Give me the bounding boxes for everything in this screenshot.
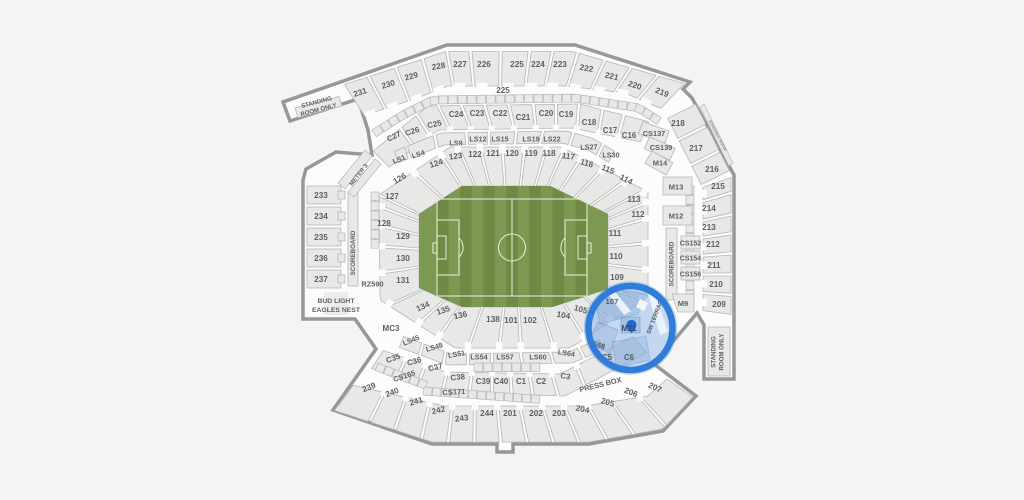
svg-text:ROOM ONLY: ROOM ONLY [719, 333, 726, 370]
svg-text:M14: M14 [653, 159, 668, 168]
svg-text:235: 235 [314, 233, 328, 242]
svg-text:107: 107 [606, 297, 619, 306]
svg-text:225: 225 [510, 60, 524, 69]
svg-text:C6: C6 [624, 353, 635, 362]
svg-text:C24: C24 [449, 110, 464, 119]
svg-text:210: 210 [709, 280, 723, 289]
svg-text:LS27: LS27 [580, 142, 597, 152]
svg-text:SCOREBOARD: SCOREBOARD [669, 241, 676, 286]
svg-text:C1: C1 [516, 377, 527, 386]
svg-text:LS15: LS15 [491, 135, 508, 144]
svg-text:129: 129 [396, 232, 410, 241]
svg-text:LS9: LS9 [449, 139, 462, 148]
svg-text:CS154: CS154 [680, 256, 702, 263]
svg-text:217: 217 [689, 144, 703, 153]
svg-text:226: 226 [477, 60, 491, 69]
svg-text:C17: C17 [603, 126, 618, 135]
svg-text:131: 131 [396, 276, 410, 285]
svg-text:122: 122 [468, 150, 482, 159]
svg-text:212: 212 [706, 240, 720, 249]
svg-text:111: 111 [609, 229, 622, 238]
svg-text:203: 203 [552, 409, 566, 418]
svg-text:C40: C40 [494, 377, 509, 386]
svg-text:112: 112 [631, 210, 645, 219]
svg-text:223: 223 [553, 60, 567, 69]
svg-text:C39: C39 [476, 377, 491, 386]
svg-text:236: 236 [314, 254, 328, 263]
svg-text:LS57: LS57 [496, 353, 513, 362]
svg-text:C2: C2 [536, 377, 547, 386]
svg-text:CS139: CS139 [650, 143, 673, 152]
svg-text:EAGLES NEST: EAGLES NEST [312, 307, 361, 314]
svg-text:121: 121 [486, 149, 500, 158]
svg-text:LS19: LS19 [522, 135, 539, 144]
svg-text:M13: M13 [669, 183, 684, 192]
svg-text:128: 128 [377, 219, 391, 228]
svg-text:101: 101 [504, 316, 518, 325]
svg-text:127: 127 [385, 192, 399, 201]
svg-text:C22: C22 [493, 109, 508, 118]
svg-text:224: 224 [531, 60, 545, 69]
svg-text:118: 118 [542, 149, 556, 158]
svg-text:117: 117 [561, 151, 576, 162]
svg-text:227: 227 [453, 60, 467, 69]
svg-text:LS22: LS22 [543, 135, 560, 144]
svg-text:M21: M21 [621, 324, 637, 333]
svg-text:109: 109 [610, 273, 624, 282]
svg-text:LS60: LS60 [529, 353, 546, 362]
svg-text:234: 234 [314, 212, 328, 221]
svg-text:218: 218 [671, 119, 685, 128]
svg-text:214: 214 [702, 204, 716, 213]
svg-text:LS54: LS54 [470, 353, 487, 362]
svg-text:C16: C16 [622, 131, 637, 140]
svg-text:C18: C18 [582, 118, 597, 127]
svg-text:SCOREBOARD: SCOREBOARD [350, 230, 357, 275]
svg-text:M12: M12 [669, 212, 684, 221]
svg-text:C38: C38 [450, 372, 466, 383]
svg-text:M9: M9 [678, 299, 689, 308]
svg-text:CS137: CS137 [643, 129, 666, 138]
svg-text:102: 102 [523, 316, 537, 325]
svg-text:130: 130 [396, 254, 410, 263]
svg-text:C21: C21 [516, 113, 531, 122]
svg-text:113: 113 [627, 195, 641, 204]
svg-text:243: 243 [454, 413, 469, 424]
svg-text:LS30: LS30 [602, 151, 619, 160]
svg-text:BUD LIGHT: BUD LIGHT [317, 298, 355, 305]
svg-text:C20: C20 [539, 109, 554, 118]
svg-text:202: 202 [529, 409, 543, 418]
svg-text:244: 244 [480, 409, 494, 418]
svg-text:211: 211 [707, 261, 721, 270]
svg-text:CS152: CS152 [680, 241, 702, 248]
svg-text:215: 215 [711, 182, 725, 191]
svg-text:CS156: CS156 [680, 272, 702, 279]
svg-text:LS12: LS12 [469, 135, 486, 144]
svg-text:138: 138 [486, 315, 500, 324]
svg-text:MC3: MC3 [383, 324, 400, 333]
svg-text:RZ590: RZ590 [361, 280, 383, 289]
svg-text:201: 201 [503, 409, 517, 418]
svg-text:C19: C19 [559, 110, 574, 119]
svg-text:C23: C23 [470, 109, 485, 118]
svg-text:209: 209 [712, 300, 726, 309]
svg-text:233: 233 [314, 191, 328, 200]
svg-text:225: 225 [496, 86, 510, 95]
svg-text:119: 119 [524, 149, 538, 158]
svg-text:120: 120 [505, 149, 519, 158]
svg-text:213: 213 [702, 223, 716, 232]
svg-text:110: 110 [609, 252, 623, 261]
svg-text:C3: C3 [560, 371, 572, 382]
svg-text:216: 216 [705, 165, 719, 174]
svg-text:CS171: CS171 [442, 387, 465, 397]
svg-text:237: 237 [314, 275, 328, 284]
svg-text:STANDING: STANDING [711, 336, 718, 368]
